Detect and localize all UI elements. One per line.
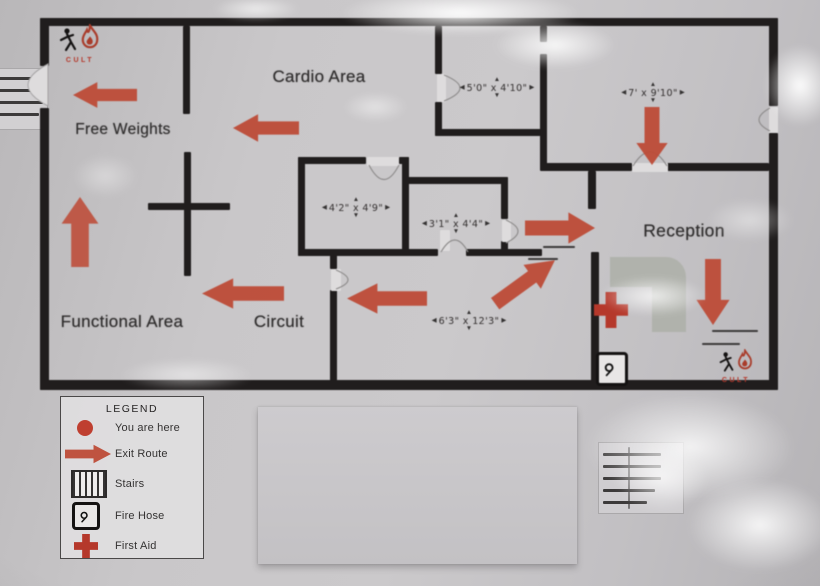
dimension-label: ▲ ◀5'0" x 4'10"▶ ▼ <box>460 77 535 100</box>
exit-route-arrow <box>635 107 669 165</box>
dim-left-arrow-icon: ◀ <box>422 221 427 228</box>
dim-left-arrow-icon: ◀ <box>432 318 437 325</box>
wall <box>588 171 596 209</box>
room-label-free-weights: Free Weights <box>75 121 171 139</box>
dimension-label: ▲ ◀3'1" x 4'4"▶ ▼ <box>422 213 490 236</box>
brand-logo-glyphs <box>718 349 755 376</box>
wall <box>40 108 49 390</box>
dim-right-arrow-icon: ▶ <box>529 85 534 92</box>
door-arc <box>444 75 460 101</box>
dim-left-arrow-icon: ◀ <box>322 205 327 212</box>
legend-item-first-aid: First Aid <box>65 533 199 559</box>
exit-route-arrow <box>60 197 100 267</box>
athlete-icon <box>58 26 78 56</box>
door <box>502 220 511 242</box>
room-label-reception: Reception <box>643 221 725 242</box>
wall <box>466 249 542 256</box>
exit-route-arrow <box>525 211 595 245</box>
wall <box>184 152 191 276</box>
dim-down-arrow-icon: ▼ <box>494 93 500 100</box>
you-are-here-dot <box>77 420 93 436</box>
room-label-cardio: Cardio Area <box>272 67 365 87</box>
dim-right-arrow-icon: ▶ <box>385 205 390 212</box>
door-arc <box>28 64 48 106</box>
wall <box>769 133 778 390</box>
reception-desk <box>652 283 686 332</box>
door <box>331 269 341 291</box>
dim-down-arrow-icon: ▼ <box>353 213 359 220</box>
door <box>769 107 778 133</box>
room-label-functional-area: Functional Area <box>61 312 184 332</box>
athlete-icon <box>718 350 735 376</box>
dimension-label: ▲ ◀6'3" x 12'3"▶ ▼ <box>432 310 507 333</box>
legend-item-label: Fire Hose <box>115 510 164 522</box>
step-line <box>543 246 575 248</box>
wall <box>540 26 547 42</box>
legend-item-stairs: Stairs <box>65 471 199 497</box>
first-aid-cross <box>74 534 98 558</box>
wall <box>40 18 778 26</box>
evacuation-map-photo: Cardio Area Free Weights Functional Area… <box>0 0 820 586</box>
legend-item-exit-route: Exit Route <box>65 441 199 467</box>
legend-title: LEGEND <box>61 403 203 415</box>
legend-item-label: You are here <box>115 422 180 434</box>
exit-route-arrow <box>73 81 137 109</box>
wall <box>330 290 337 385</box>
step-line <box>702 343 740 345</box>
dim-right-arrow-icon: ▶ <box>501 318 506 325</box>
exit-route-arrow <box>347 282 427 315</box>
wall <box>183 26 190 114</box>
brand-logo: CULT <box>708 349 764 384</box>
wall <box>435 26 442 74</box>
exit-route-arrow <box>695 259 731 325</box>
dim-right-arrow-icon: ▶ <box>680 90 685 97</box>
legend-item-label: Exit Route <box>115 448 168 460</box>
legend-item-fire-hose: Fire Hose <box>65 503 199 529</box>
legend-item-you-are-here: You are here <box>65 415 199 441</box>
step-line <box>712 330 758 332</box>
exit-route-arrow-icon <box>65 444 111 464</box>
first-aid-cross <box>594 292 628 328</box>
brand-logo-text: CULT <box>722 377 750 384</box>
brand-logo-text: CULT <box>66 57 94 64</box>
wall <box>298 249 438 256</box>
fire-hose-icon <box>72 502 100 530</box>
wall <box>330 252 337 269</box>
wall <box>435 129 545 136</box>
wall <box>40 380 778 390</box>
room-label-circuit: Circuit <box>254 312 304 332</box>
flame-icon <box>78 24 102 56</box>
dim-down-arrow-icon: ▼ <box>453 229 459 236</box>
wall <box>402 157 409 256</box>
door <box>632 163 668 172</box>
hose-spiral-glyph <box>79 509 94 524</box>
wall <box>540 163 632 171</box>
wall <box>501 177 508 219</box>
brand-logo-glyphs <box>58 24 102 56</box>
flame-icon <box>735 349 755 376</box>
step-line <box>528 258 558 260</box>
dim-right-arrow-icon: ▶ <box>485 221 490 228</box>
wall <box>667 163 769 171</box>
wall <box>298 157 305 256</box>
wall <box>40 18 49 66</box>
dim-left-arrow-icon: ◀ <box>621 90 626 97</box>
wall <box>540 54 547 168</box>
dim-left-arrow-icon: ◀ <box>460 85 465 92</box>
dim-down-arrow-icon: ▼ <box>650 98 656 105</box>
exit-route-arrow <box>233 113 299 143</box>
dim-down-arrow-icon: ▼ <box>466 326 472 333</box>
wall <box>298 157 366 164</box>
legend-item-label: Stairs <box>115 478 144 490</box>
stairs-icon <box>71 470 107 498</box>
legend-item-label: First Aid <box>115 540 157 552</box>
hose-spiral-glyph <box>603 360 621 378</box>
dimension-label: ▲ ◀7' x 9'10"▶ ▼ <box>621 82 684 105</box>
door-arc <box>369 165 399 180</box>
legend: LEGEND You are here Exit Route Stairs Fi… <box>60 396 204 559</box>
exit-route-arrow <box>202 277 284 310</box>
dimension-label: ▲ ◀4'2" x 4'9"▶ ▼ <box>322 197 390 220</box>
wall <box>148 203 230 210</box>
brand-logo: CULT <box>52 24 108 64</box>
fire-hose-icon <box>596 352 628 386</box>
door <box>437 74 446 102</box>
wall <box>769 18 778 106</box>
wall <box>402 177 508 184</box>
door <box>367 157 399 166</box>
